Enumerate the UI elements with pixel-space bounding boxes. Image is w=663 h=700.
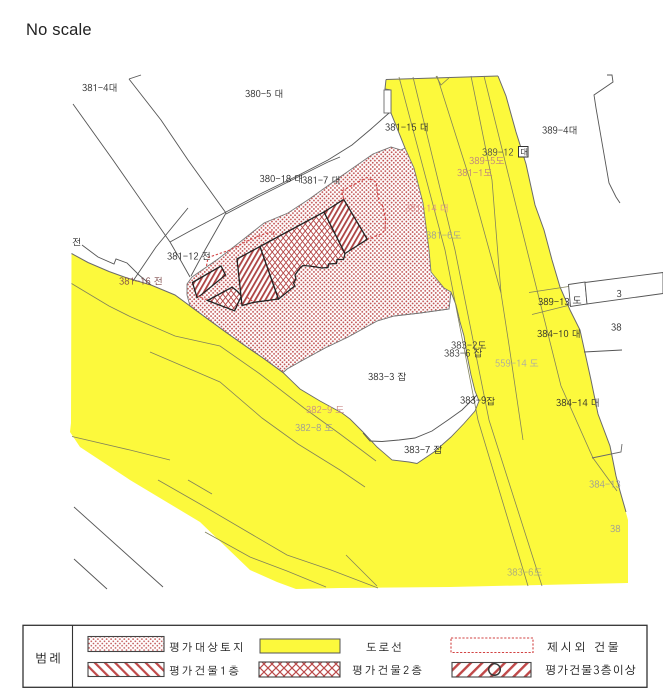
svg-text:No scale: No scale	[26, 21, 92, 39]
